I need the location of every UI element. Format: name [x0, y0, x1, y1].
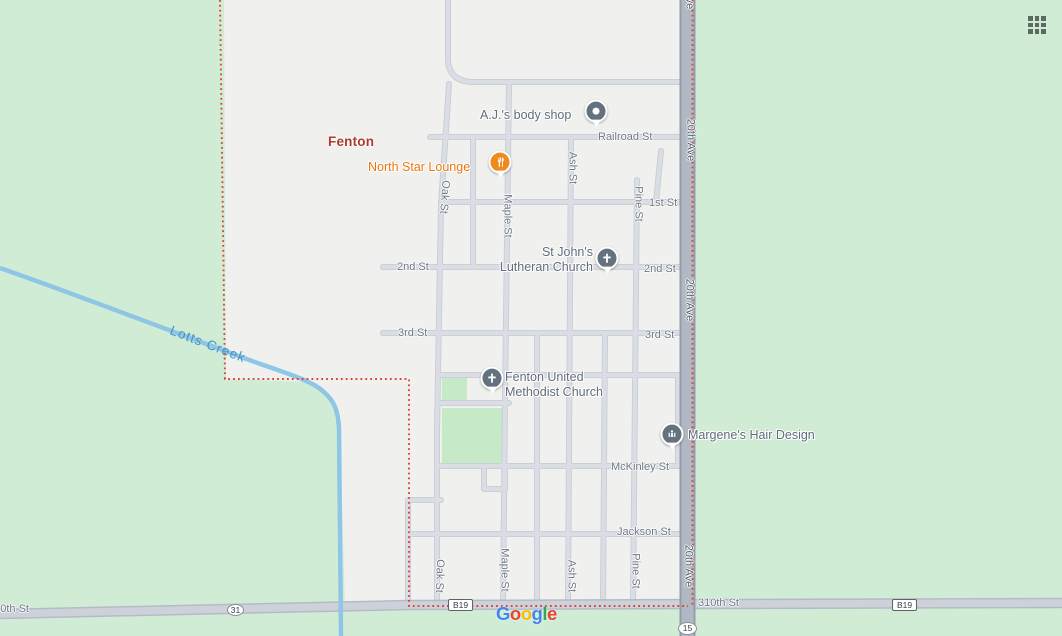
poi-label-line2: Methodist Church: [505, 385, 603, 400]
poi-label-fenton-united-methodist-church[interactable]: Fenton United Methodist Church: [505, 370, 603, 400]
poi-label-margenes-hair-design[interactable]: Margene's Hair Design: [688, 428, 815, 443]
poi-label-ajs-body-shop[interactable]: A.J.'s body shop: [480, 108, 571, 123]
street-label-railroad-st: Railroad St: [598, 131, 652, 144]
map-viewport[interactable]: Fenton Lotts Creek Railroad St 1st St 2n…: [0, 0, 1062, 636]
street-label-jackson-st: Jackson St: [617, 526, 671, 539]
street-label-3rd-st-east: 3rd St: [645, 329, 674, 342]
park-area: [442, 408, 505, 466]
street-label-ash-st-south: Ash St: [565, 560, 578, 592]
street-label-oak-st-north: Oak St: [436, 180, 451, 214]
park-area: [442, 376, 467, 403]
beauty-salon-icon: [667, 429, 678, 440]
route-badge-b19-east: B19: [892, 599, 917, 611]
street-label-2nd-st-west: 2nd St: [397, 261, 429, 274]
google-logo[interactable]: Google: [496, 603, 557, 625]
town-label-fenton: Fenton: [328, 134, 374, 149]
street-label-oak-st-south: Oak St: [432, 559, 446, 593]
poi-pin-fenton-united-methodist-church[interactable]: [481, 367, 504, 390]
route-badge-b19-west: B19: [448, 599, 473, 611]
google-logo-letter: e: [547, 603, 557, 624]
poi-pin-north-star-lounge[interactable]: [489, 151, 512, 174]
urban-area: [224, 0, 688, 609]
restaurant-icon: [495, 157, 506, 168]
church-icon: [487, 373, 498, 384]
google-logo-letter: g: [532, 603, 543, 624]
church-icon: [602, 253, 613, 264]
poi-label-line1: Fenton United: [505, 370, 603, 385]
route-badge-31: 31: [227, 604, 244, 616]
street-label-maple-st-south: Maple St: [498, 548, 511, 591]
street-label-ash-st-north: Ash St: [566, 152, 579, 184]
street-label-20th-ave-lower: 20th Ave: [682, 545, 695, 588]
google-logo-letter: o: [510, 603, 521, 624]
street-label-20th-ave-upper: 20th Ave: [684, 119, 697, 162]
poi-label-line2: Lutheran Church: [483, 260, 593, 275]
street-label-20th-ave-top: 20th Ave: [683, 0, 696, 9]
poi-dot-icon: [593, 108, 600, 115]
street-label-mckinley-st: McKinley St: [611, 461, 669, 474]
map-canvas[interactable]: [0, 0, 1062, 636]
street-label-2nd-st-east: 2nd St: [644, 263, 676, 276]
street-label-20th-ave-middle: 20th Ave: [683, 279, 696, 322]
poi-pin-margenes-hair-design[interactable]: [661, 423, 684, 446]
street-label-310th-st-west: 310th St: [0, 603, 29, 616]
poi-pin-st-johns-lutheran-church[interactable]: [596, 247, 619, 270]
street-label-3rd-st-west: 3rd St: [398, 327, 427, 340]
poi-label-north-star-lounge[interactable]: North Star Lounge: [368, 160, 470, 175]
apps-grid-icon[interactable]: [1028, 16, 1046, 34]
google-logo-letter: G: [496, 603, 510, 624]
poi-pin-ajs-body-shop[interactable]: [585, 100, 608, 123]
street-label-1st-st: 1st St: [649, 197, 677, 210]
street-label-pine-st-south: Pine St: [629, 553, 642, 588]
street-label-310th-st-east: 310th St: [698, 597, 739, 610]
street-label-maple-st-north: Maple St: [501, 194, 514, 237]
poi-label-line1: St John's: [483, 245, 593, 260]
route-badge-15: 15: [678, 622, 697, 635]
google-logo-letter: o: [521, 603, 532, 624]
poi-label-st-johns-lutheran-church[interactable]: St John's Lutheran Church: [483, 245, 593, 275]
street-label-pine-st-north: Pine St: [632, 186, 645, 221]
